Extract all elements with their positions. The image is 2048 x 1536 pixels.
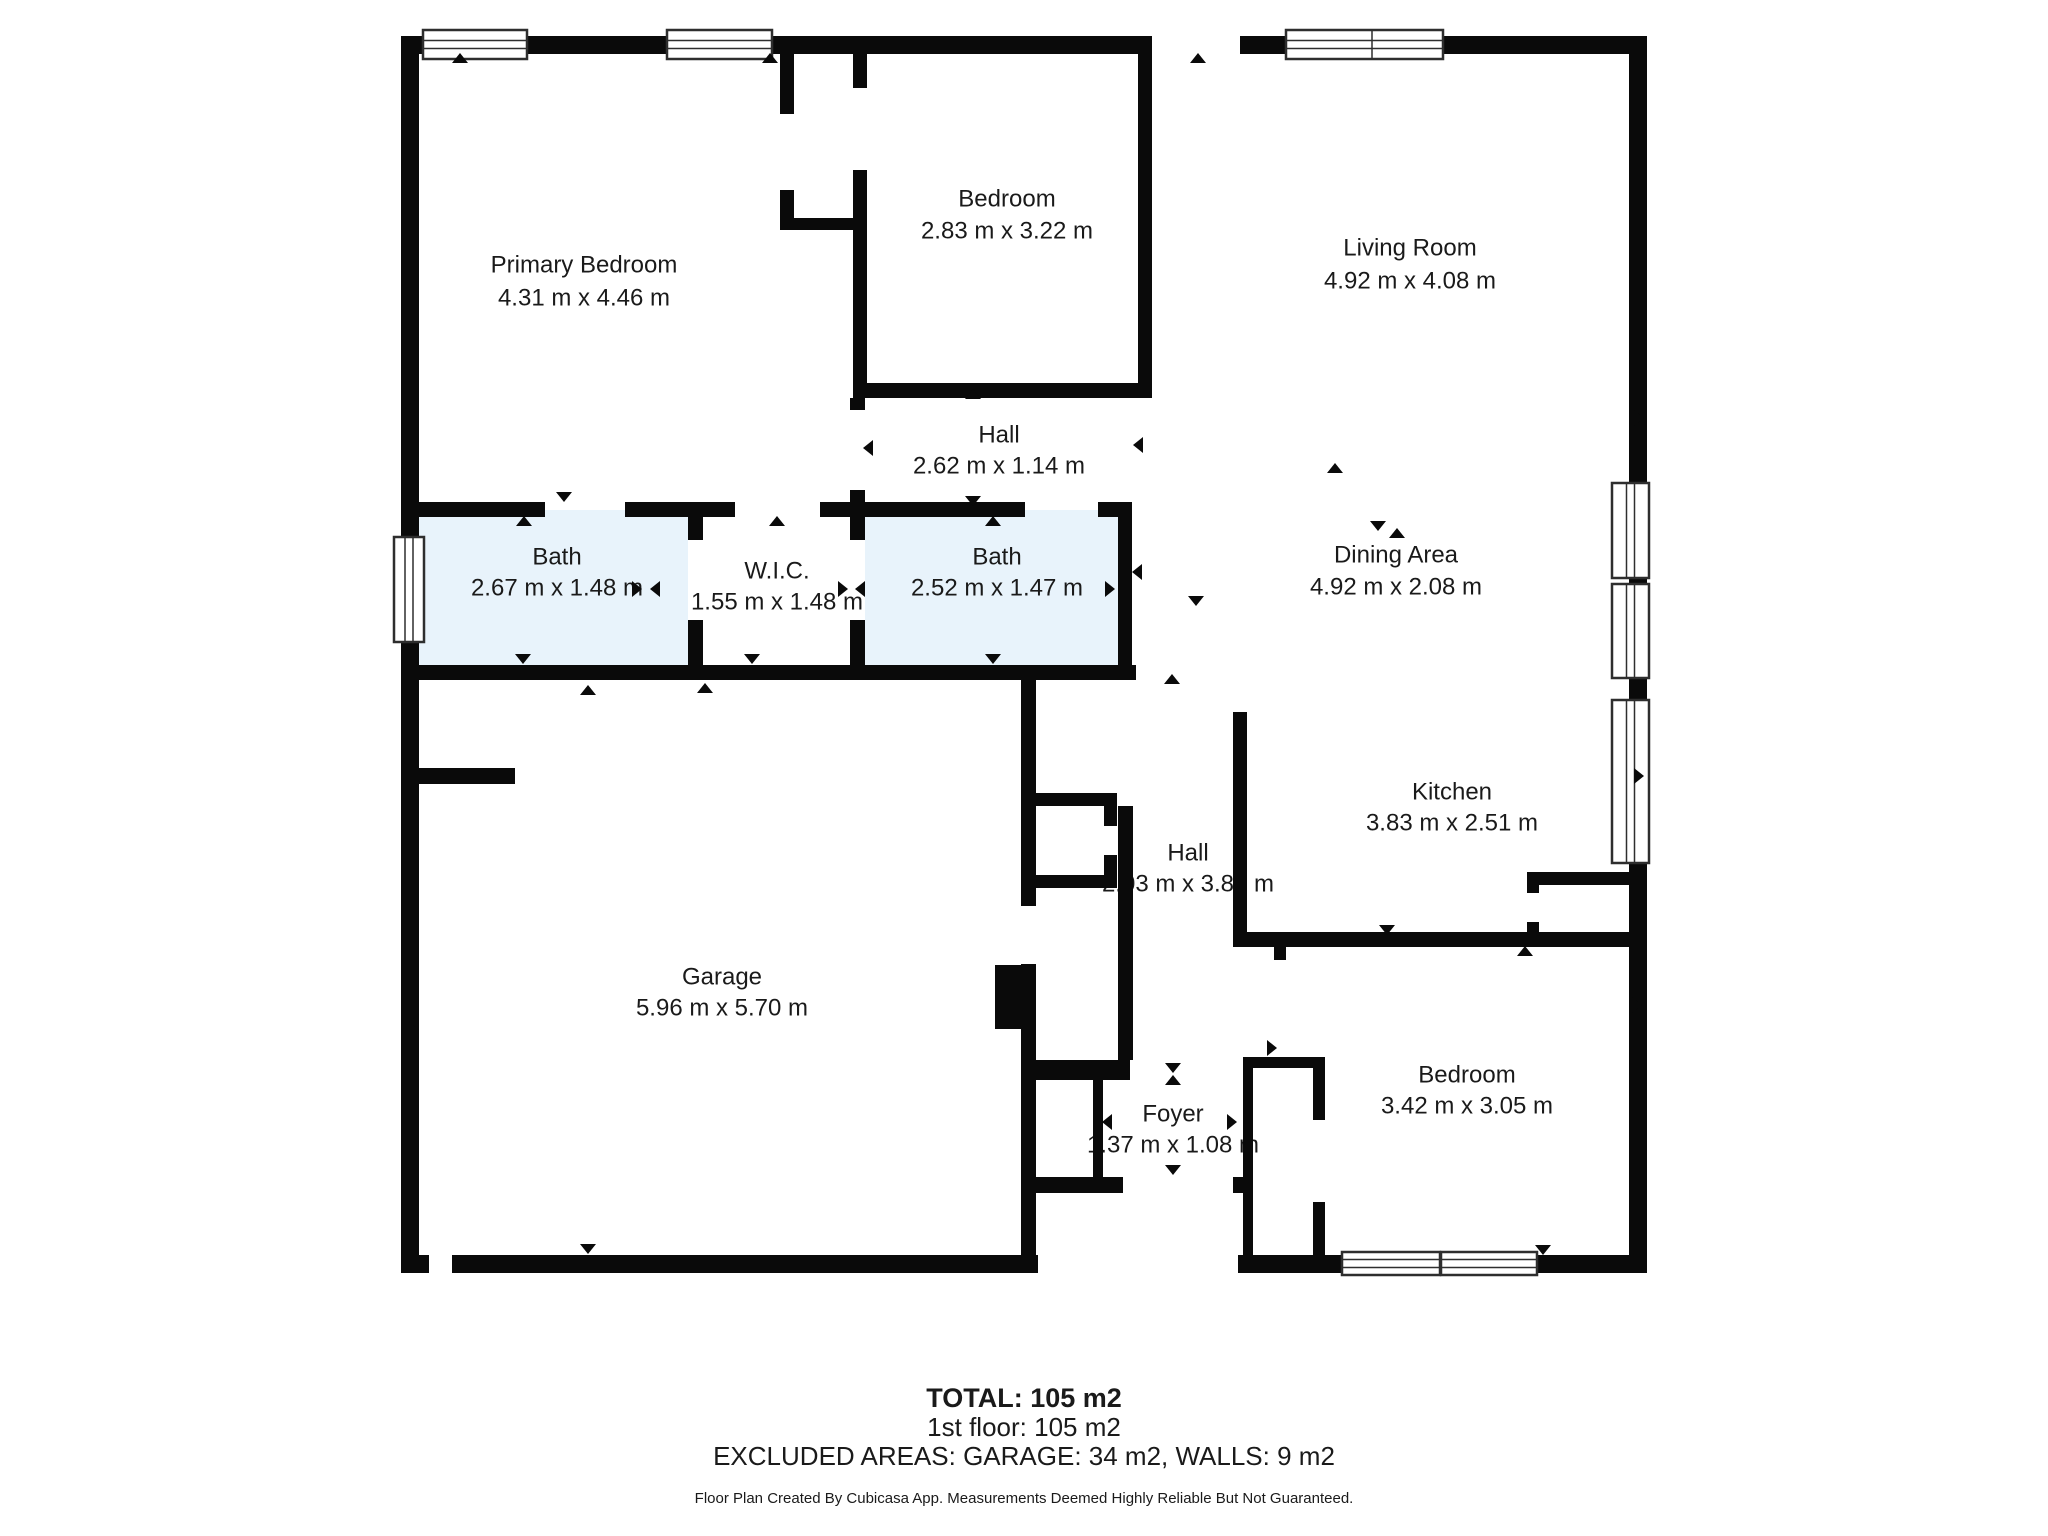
wall-segment: [1021, 964, 1036, 1273]
window-icon: [423, 30, 527, 59]
wall-segment: [688, 502, 703, 540]
wall-segment: [401, 1255, 1038, 1273]
room-label-dining-area: Dining Area: [1334, 541, 1459, 568]
wall-segment: [401, 36, 419, 1273]
window-icon: [1441, 1252, 1537, 1275]
room-label-bath-left: Bath: [532, 543, 581, 570]
window-icon: [1286, 30, 1443, 59]
wall-segment: [1313, 1202, 1325, 1270]
wall-segment: [1036, 875, 1117, 888]
room-label-hall-bottom: Hall: [1167, 839, 1208, 866]
room-dims-bedroom-top: 2.83 m x 3.22 m: [921, 217, 1093, 244]
room-dims-bath-left: 2.67 m x 1.48 m: [471, 574, 643, 601]
wall-segment: [625, 502, 735, 517]
wall-segment: [419, 502, 545, 517]
room-dims-foyer: 1.37 m x 1.08 m: [1087, 1131, 1259, 1158]
wall-segment: [1138, 54, 1152, 398]
wall-segment: [1118, 806, 1133, 1060]
wall-segment: [853, 383, 1152, 398]
wall-segment: [1104, 855, 1117, 875]
room-label-kitchen: Kitchen: [1412, 778, 1492, 805]
window-icon: [1612, 483, 1649, 578]
wall-segment: [1104, 806, 1117, 826]
room-dims-wic: 1.55 m x 1.48 m: [691, 588, 863, 615]
floor-plan-canvas: Primary Bedroom 4.31 m x 4.46 m Bedroom …: [0, 0, 2048, 1536]
room-label-bedroom-top: Bedroom: [958, 185, 1055, 212]
room-label-bedroom-bottom: Bedroom: [1418, 1061, 1515, 1088]
wall-segment: [1527, 885, 1539, 893]
room-dims-bath-right: 2.52 m x 1.47 m: [911, 574, 1083, 601]
wall-segment: [1243, 1057, 1253, 1270]
wall-segment: [1036, 1060, 1130, 1080]
wall-segment: [1021, 680, 1036, 906]
wall-segment: [1093, 1080, 1103, 1177]
summary-excluded-areas: EXCLUDED AREAS: GARAGE: 34 m2, WALLS: 9 …: [713, 1441, 1335, 1471]
room-label-foyer: Foyer: [1142, 1100, 1203, 1127]
room-dims-hall-top: 2.62 m x 1.14 m: [913, 452, 1085, 479]
wall-segment: [1527, 922, 1539, 932]
window-icon: [667, 30, 772, 59]
floor-plan-page: Primary Bedroom 4.31 m x 4.46 m Bedroom …: [0, 0, 2048, 1536]
room-label-hall-top: Hall: [978, 421, 1019, 448]
window-icon: [1612, 584, 1649, 678]
room-dims-dining-area: 4.92 m x 2.08 m: [1310, 573, 1482, 600]
room-label-bath-right: Bath: [972, 543, 1021, 570]
summary-disclaimer: Floor Plan Created By Cubicasa App. Meas…: [695, 1490, 1354, 1507]
wall-segment: [1118, 502, 1132, 680]
window-icon: [394, 537, 424, 642]
wall-segment: [1274, 947, 1286, 960]
wall-segment: [1527, 872, 1629, 885]
window-icon: [1342, 1252, 1440, 1275]
room-dims-kitchen: 3.83 m x 2.51 m: [1366, 809, 1538, 836]
window-icon: [1612, 700, 1649, 863]
wall-segment: [1313, 1057, 1325, 1120]
wall-segment: [1036, 1177, 1123, 1193]
room-dims-garage: 5.96 m x 5.70 m: [636, 994, 808, 1021]
wall-segment: [995, 965, 1021, 1029]
wall-segment: [850, 398, 865, 410]
wall-segment: [1233, 712, 1247, 947]
room-label-living-room: Living Room: [1343, 234, 1476, 261]
wall-segment: [401, 665, 1136, 680]
room-label-garage: Garage: [682, 963, 762, 990]
wall-segment: [419, 768, 515, 784]
summary-total: TOTAL: 105 m2: [926, 1383, 1122, 1413]
room-dims-living-room: 4.92 m x 4.08 m: [1324, 267, 1496, 294]
room-dims-primary-bedroom: 4.31 m x 4.46 m: [498, 284, 670, 311]
wall-segment: [1036, 793, 1117, 806]
wall-segment: [853, 54, 867, 88]
room-dims-bedroom-bottom: 3.42 m x 3.05 m: [1381, 1092, 1553, 1119]
wall-segment: [853, 170, 867, 398]
garage-door-notch: [429, 1255, 452, 1273]
wall-segment: [1233, 932, 1647, 947]
room-label-primary-bedroom: Primary Bedroom: [491, 251, 678, 278]
wall-segment: [820, 502, 1025, 517]
room-label-wic: W.I.C.: [744, 557, 809, 584]
wall-segment: [780, 54, 794, 114]
wall-segment: [1243, 1057, 1325, 1068]
summary-first-floor: 1st floor: 105 m2: [927, 1412, 1121, 1442]
